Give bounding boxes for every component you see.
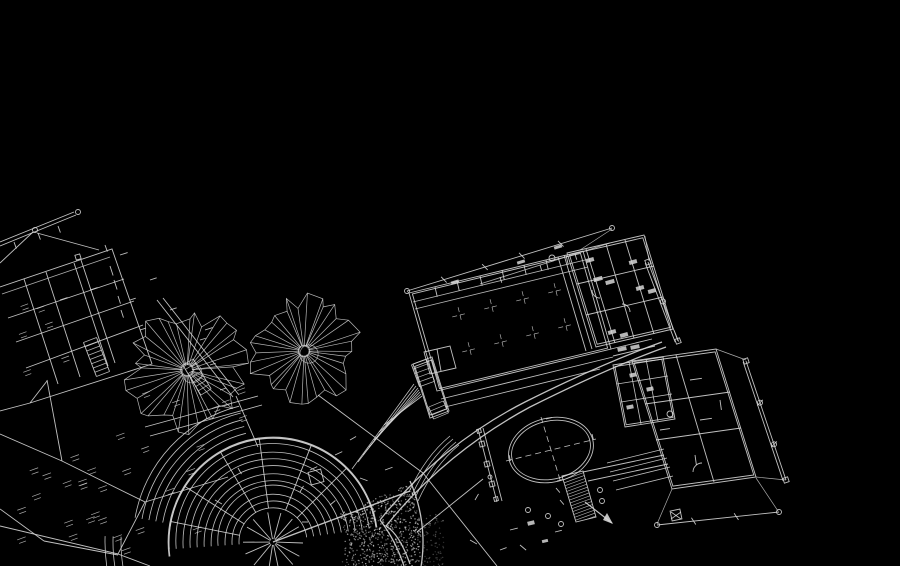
right-building xyxy=(607,344,756,521)
fan-steps xyxy=(352,384,422,469)
dimension-chain-right xyxy=(655,349,790,528)
west-building xyxy=(0,249,211,411)
site-plan-svg xyxy=(0,0,900,566)
north-boundary-fence xyxy=(0,210,107,264)
site-markers xyxy=(470,455,668,550)
dimension-lines-top xyxy=(405,226,615,294)
site-plan-canvas xyxy=(0,0,900,566)
colonnade xyxy=(477,428,502,502)
east-wing xyxy=(567,235,681,347)
tree-2 xyxy=(250,293,360,404)
hatched-ramp xyxy=(502,420,656,566)
